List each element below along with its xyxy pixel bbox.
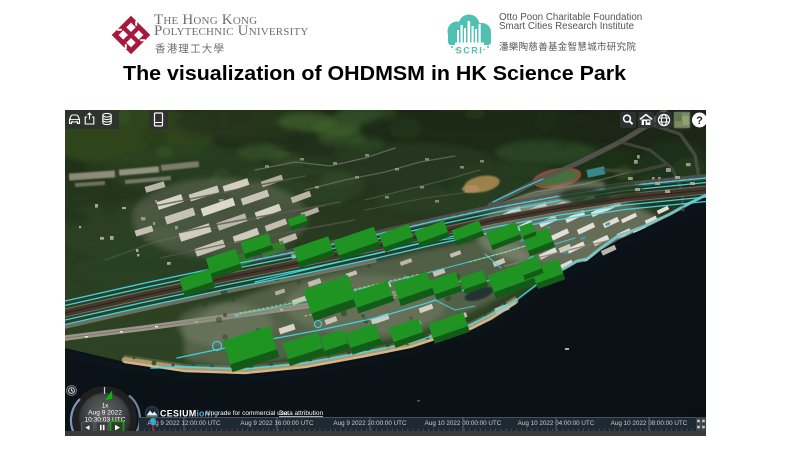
svg-text:?: ? <box>696 115 703 127</box>
svg-text:SCRI: SCRI <box>456 46 484 56</box>
svg-text:1x: 1x <box>102 403 109 410</box>
svg-text:Aug 9 2022: Aug 9 2022 <box>88 410 122 417</box>
